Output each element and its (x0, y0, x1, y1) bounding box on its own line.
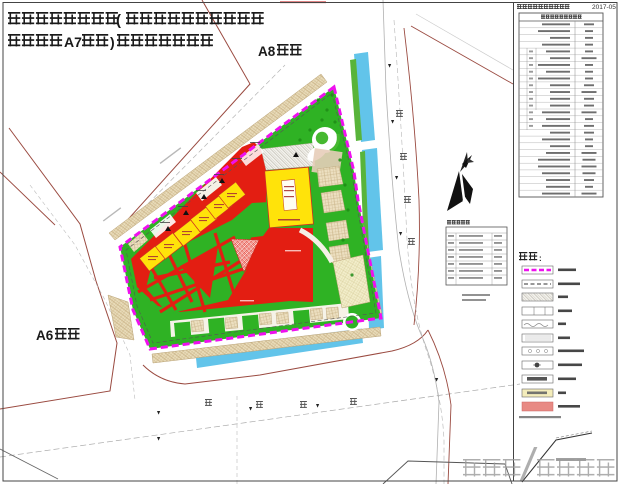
svg-text:A8: A8 (258, 44, 276, 59)
svg-text:2017-05: 2017-05 (592, 4, 616, 11)
svg-text:): ) (110, 34, 115, 50)
svg-text:A7: A7 (64, 34, 82, 50)
svg-text:A6: A6 (36, 328, 54, 343)
svg-text::: : (539, 254, 542, 263)
svg-text:(: ( (116, 12, 121, 29)
